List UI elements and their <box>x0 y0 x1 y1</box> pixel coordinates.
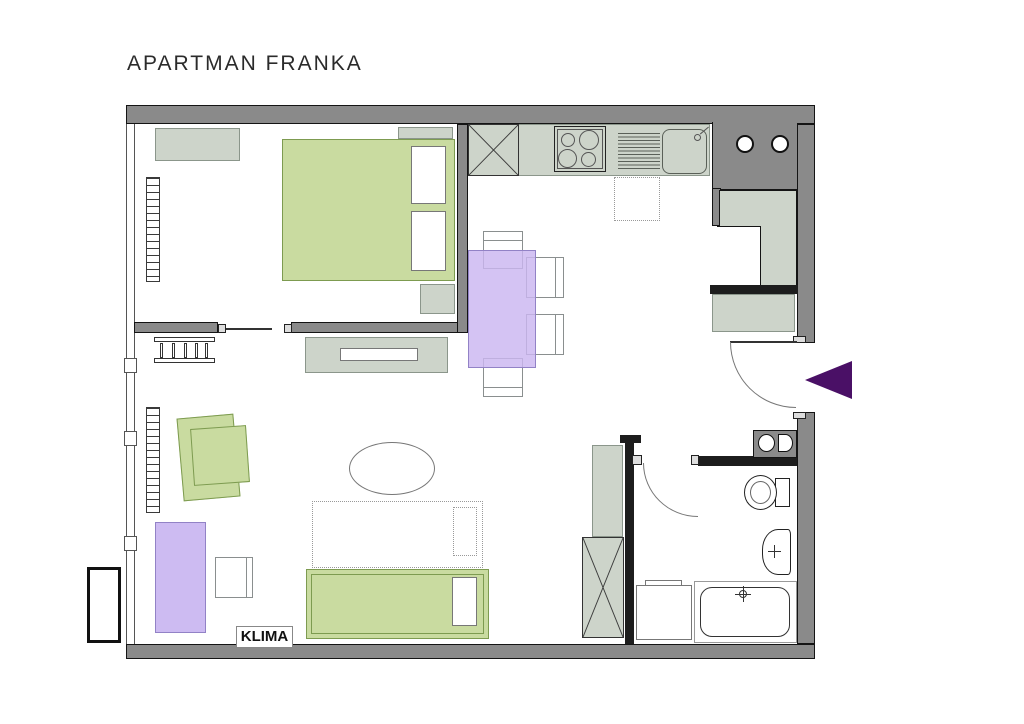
wall-chunk-northeast <box>712 122 797 190</box>
burner <box>579 130 599 150</box>
bath-niche-half-oval <box>778 434 793 452</box>
rack-rail <box>154 337 215 342</box>
wall-bedroom-east <box>457 124 468 333</box>
klima-unit-label: KLIMA <box>236 626 293 648</box>
bedroom-door-jamb <box>284 324 292 333</box>
rack-slat <box>195 343 198 358</box>
hall-closet-niche <box>717 226 761 286</box>
wall-bedroom-south-right <box>291 322 468 333</box>
window-wall <box>126 124 135 644</box>
burner <box>581 152 596 167</box>
burner <box>561 133 575 147</box>
shaft-circle <box>736 135 754 153</box>
floor-plan: APARTMAN FRANKA <box>0 0 1024 724</box>
wall-bath-west <box>625 437 634 644</box>
balcony-step <box>87 567 121 643</box>
bedroom-door-leaf <box>226 328 272 330</box>
lounge-rug <box>155 522 206 633</box>
entrance-door-swing <box>730 342 796 408</box>
toilet-tank <box>775 478 790 507</box>
wall-east-upper <box>797 124 815 343</box>
wall-south <box>126 644 815 659</box>
washbasin-faucet <box>774 545 775 558</box>
bath-niche-circle <box>758 434 775 452</box>
dashed-appliance-outline <box>614 177 660 221</box>
bathtub-faucet-cross <box>743 586 744 602</box>
dining-table <box>468 250 536 368</box>
window-transom <box>124 536 137 551</box>
hall-cabinet <box>712 294 795 332</box>
sink-faucet <box>694 134 701 141</box>
washing-machine <box>636 585 692 640</box>
wall-niche <box>710 285 798 294</box>
tv-screen <box>340 348 418 361</box>
window-transom <box>124 431 137 446</box>
rack-slat <box>160 343 163 358</box>
washing-machine-tray <box>645 580 682 586</box>
sofa-bed-pillow-outline <box>453 507 477 556</box>
bedroom-shelf <box>398 127 453 139</box>
sink-drainer <box>618 133 660 169</box>
rack-slat <box>184 343 187 358</box>
nightstand <box>420 284 455 314</box>
sofa-pillow <box>452 577 477 626</box>
entrance-arrow-icon <box>805 361 852 399</box>
wardrobe-x <box>582 537 624 638</box>
coffee-table-oval <box>349 442 435 495</box>
burner <box>558 149 577 168</box>
bath-door-jamb <box>632 455 642 465</box>
shaft-circle <box>771 135 789 153</box>
radiator <box>146 177 160 282</box>
floor-mat <box>190 425 250 486</box>
entrance-door-jamb <box>793 412 806 419</box>
rack-slat <box>172 343 175 358</box>
rack-slat <box>205 343 208 358</box>
bed-pillow <box>411 146 446 204</box>
bed-pillow <box>411 211 446 271</box>
rack-rail <box>154 358 215 363</box>
fridge <box>468 124 519 176</box>
toilet-bowl-inner <box>750 481 771 504</box>
armchair <box>215 557 253 598</box>
window-transom <box>124 358 137 373</box>
bedroom-door-jamb <box>218 324 226 333</box>
wall-east-lower <box>797 412 815 644</box>
radiator <box>146 407 160 513</box>
tall-cabinet <box>592 445 623 537</box>
wall-bedroom-south-left <box>134 322 218 333</box>
bath-door-swing <box>643 463 698 517</box>
plan-title: APARTMAN FRANKA <box>127 52 363 76</box>
bedroom-dresser <box>155 128 240 161</box>
